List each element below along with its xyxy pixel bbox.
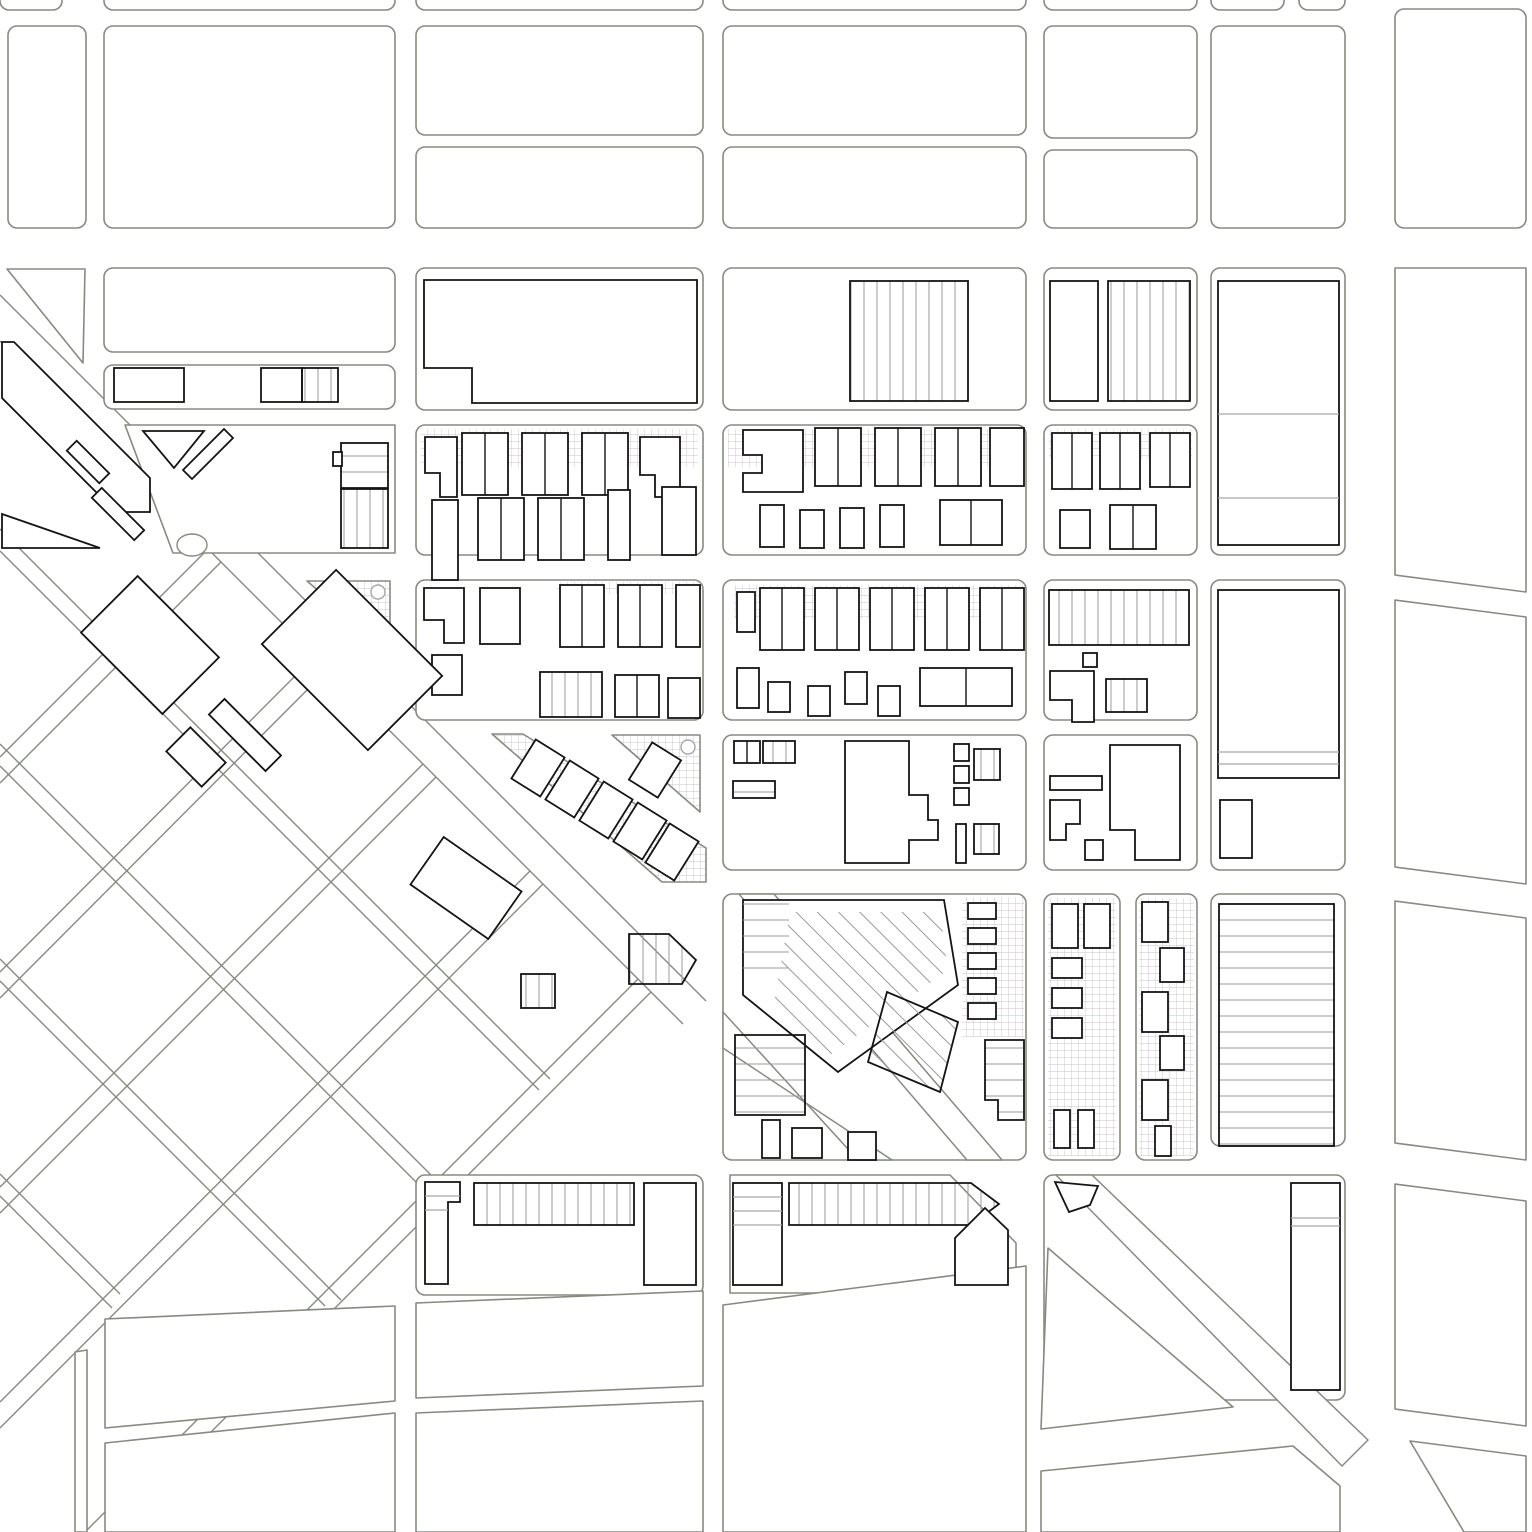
city-block xyxy=(1395,901,1526,1160)
building-footprint xyxy=(737,592,755,632)
city-block xyxy=(104,268,395,352)
building-footprint xyxy=(302,368,338,402)
city-block xyxy=(416,1291,703,1398)
building-footprint xyxy=(262,570,442,750)
building-footprint xyxy=(968,978,996,994)
building-footprint xyxy=(333,452,342,466)
building-footprint xyxy=(1218,281,1339,545)
building-footprint xyxy=(733,1183,782,1285)
building-footprint xyxy=(878,686,900,716)
district-street-edge xyxy=(0,1196,112,1308)
building-footprint xyxy=(1078,1110,1094,1148)
district-street-edge xyxy=(0,1174,120,1294)
city-block xyxy=(1395,600,1526,884)
building-footprint xyxy=(2,514,100,548)
building-footprint xyxy=(1218,590,1339,778)
city-block xyxy=(104,26,395,228)
building-footprint xyxy=(644,1183,696,1285)
building-footprint xyxy=(1050,776,1102,790)
building-footprint xyxy=(880,505,904,547)
building-footprint xyxy=(1084,904,1110,948)
building-footprint xyxy=(166,727,225,786)
building-footprint xyxy=(1291,1183,1340,1390)
building-footprint xyxy=(968,1003,996,1019)
building-footprint xyxy=(808,686,830,716)
building-footprint xyxy=(1049,590,1189,645)
building-footprint xyxy=(1052,958,1082,978)
building-footprint xyxy=(629,934,696,984)
building-footprint xyxy=(668,678,700,718)
city-block xyxy=(1041,1446,1340,1532)
building-footprint xyxy=(954,788,969,805)
building-footprint xyxy=(789,1183,999,1225)
building-footprint xyxy=(990,428,1024,486)
city-plan-svg xyxy=(0,0,1532,1532)
building-footprint xyxy=(850,281,968,401)
building-footprint xyxy=(968,953,996,969)
building-footprint xyxy=(341,443,388,488)
building-footprint xyxy=(800,510,824,548)
building-footprint xyxy=(114,368,184,402)
building-footprint xyxy=(1054,1110,1070,1148)
city-block xyxy=(1395,268,1526,592)
city-block xyxy=(1395,1184,1526,1426)
building-footprint xyxy=(521,974,555,1008)
city-block xyxy=(416,26,703,135)
building-footprint xyxy=(968,928,996,944)
building-footprint xyxy=(954,766,969,783)
building-footprint xyxy=(1050,281,1098,401)
building-footprint xyxy=(1142,902,1168,942)
building-footprint xyxy=(1142,1080,1168,1120)
building-footprint xyxy=(762,1120,780,1158)
building-footprint xyxy=(540,672,602,717)
city-block xyxy=(416,147,703,228)
building-footprint xyxy=(1220,800,1252,858)
city-block xyxy=(105,1306,395,1428)
building-footprint xyxy=(1052,988,1082,1008)
building-footprint xyxy=(261,368,302,402)
pond xyxy=(177,534,207,556)
building-footprint xyxy=(676,585,700,647)
building-footprint xyxy=(1052,1018,1082,1038)
city-block xyxy=(1044,0,1197,10)
building-footprint xyxy=(768,682,790,712)
building-footprint xyxy=(743,900,789,978)
building-footprint xyxy=(662,487,696,555)
district-street-edge xyxy=(0,669,328,998)
city-block xyxy=(0,0,62,10)
building-footprint xyxy=(1083,653,1097,667)
building-footprint xyxy=(1052,904,1078,948)
city-block xyxy=(104,0,395,10)
city-block xyxy=(1410,1441,1526,1532)
building-footprint xyxy=(341,489,388,548)
city-block xyxy=(723,147,1026,228)
city-block xyxy=(1395,9,1526,228)
district-street-edge xyxy=(0,959,341,1300)
city-block xyxy=(1044,26,1197,138)
building-footprint xyxy=(763,741,795,763)
building-footprint xyxy=(954,744,969,761)
building-footprint xyxy=(792,1128,822,1158)
city-block xyxy=(1211,0,1284,10)
city-block xyxy=(416,0,703,10)
city-block xyxy=(1044,150,1197,228)
building-footprint xyxy=(956,824,966,863)
building-footprint xyxy=(1155,1126,1171,1156)
building-footprint xyxy=(974,749,1000,780)
district-street-edge xyxy=(0,766,432,1198)
building-footprint xyxy=(410,837,521,939)
building-footprint xyxy=(1142,992,1168,1032)
district-street-edge xyxy=(0,777,436,1213)
city-block xyxy=(1299,0,1345,10)
city-block xyxy=(105,1413,395,1532)
corner-circle xyxy=(371,585,385,599)
building-footprint xyxy=(735,1035,805,1115)
city-block xyxy=(1211,26,1345,228)
city-block xyxy=(723,26,1026,135)
building-footprint xyxy=(608,490,630,560)
building-footprint xyxy=(845,672,867,704)
building-footprint xyxy=(1085,840,1103,860)
building-footprint xyxy=(1060,510,1090,548)
building-footprint xyxy=(968,903,996,919)
building-footprint xyxy=(81,576,219,714)
building-footprint xyxy=(1108,281,1190,401)
building-footprint xyxy=(840,508,864,548)
district-street-edge xyxy=(0,764,423,1187)
city-block xyxy=(416,1401,703,1532)
corner-circle xyxy=(681,740,695,754)
building-footprint xyxy=(974,824,999,854)
building-footprint xyxy=(760,505,784,547)
city-block xyxy=(723,1266,1026,1532)
building-footprint xyxy=(1106,679,1147,712)
building-footprint xyxy=(474,1183,634,1225)
city-block xyxy=(75,1350,87,1532)
building-footprint xyxy=(737,668,759,708)
building-footprint xyxy=(432,500,458,580)
city-block xyxy=(723,0,1026,10)
building-footprint xyxy=(1160,1036,1184,1070)
city-block xyxy=(8,26,86,228)
building-footprint xyxy=(733,781,775,798)
building-footprint xyxy=(1160,948,1184,982)
building-footprint xyxy=(1219,904,1334,1146)
figure-ground-map xyxy=(0,0,1532,1532)
building-footprint xyxy=(480,588,520,644)
district-street-edge xyxy=(0,981,325,1306)
building-footprint xyxy=(848,1132,876,1160)
